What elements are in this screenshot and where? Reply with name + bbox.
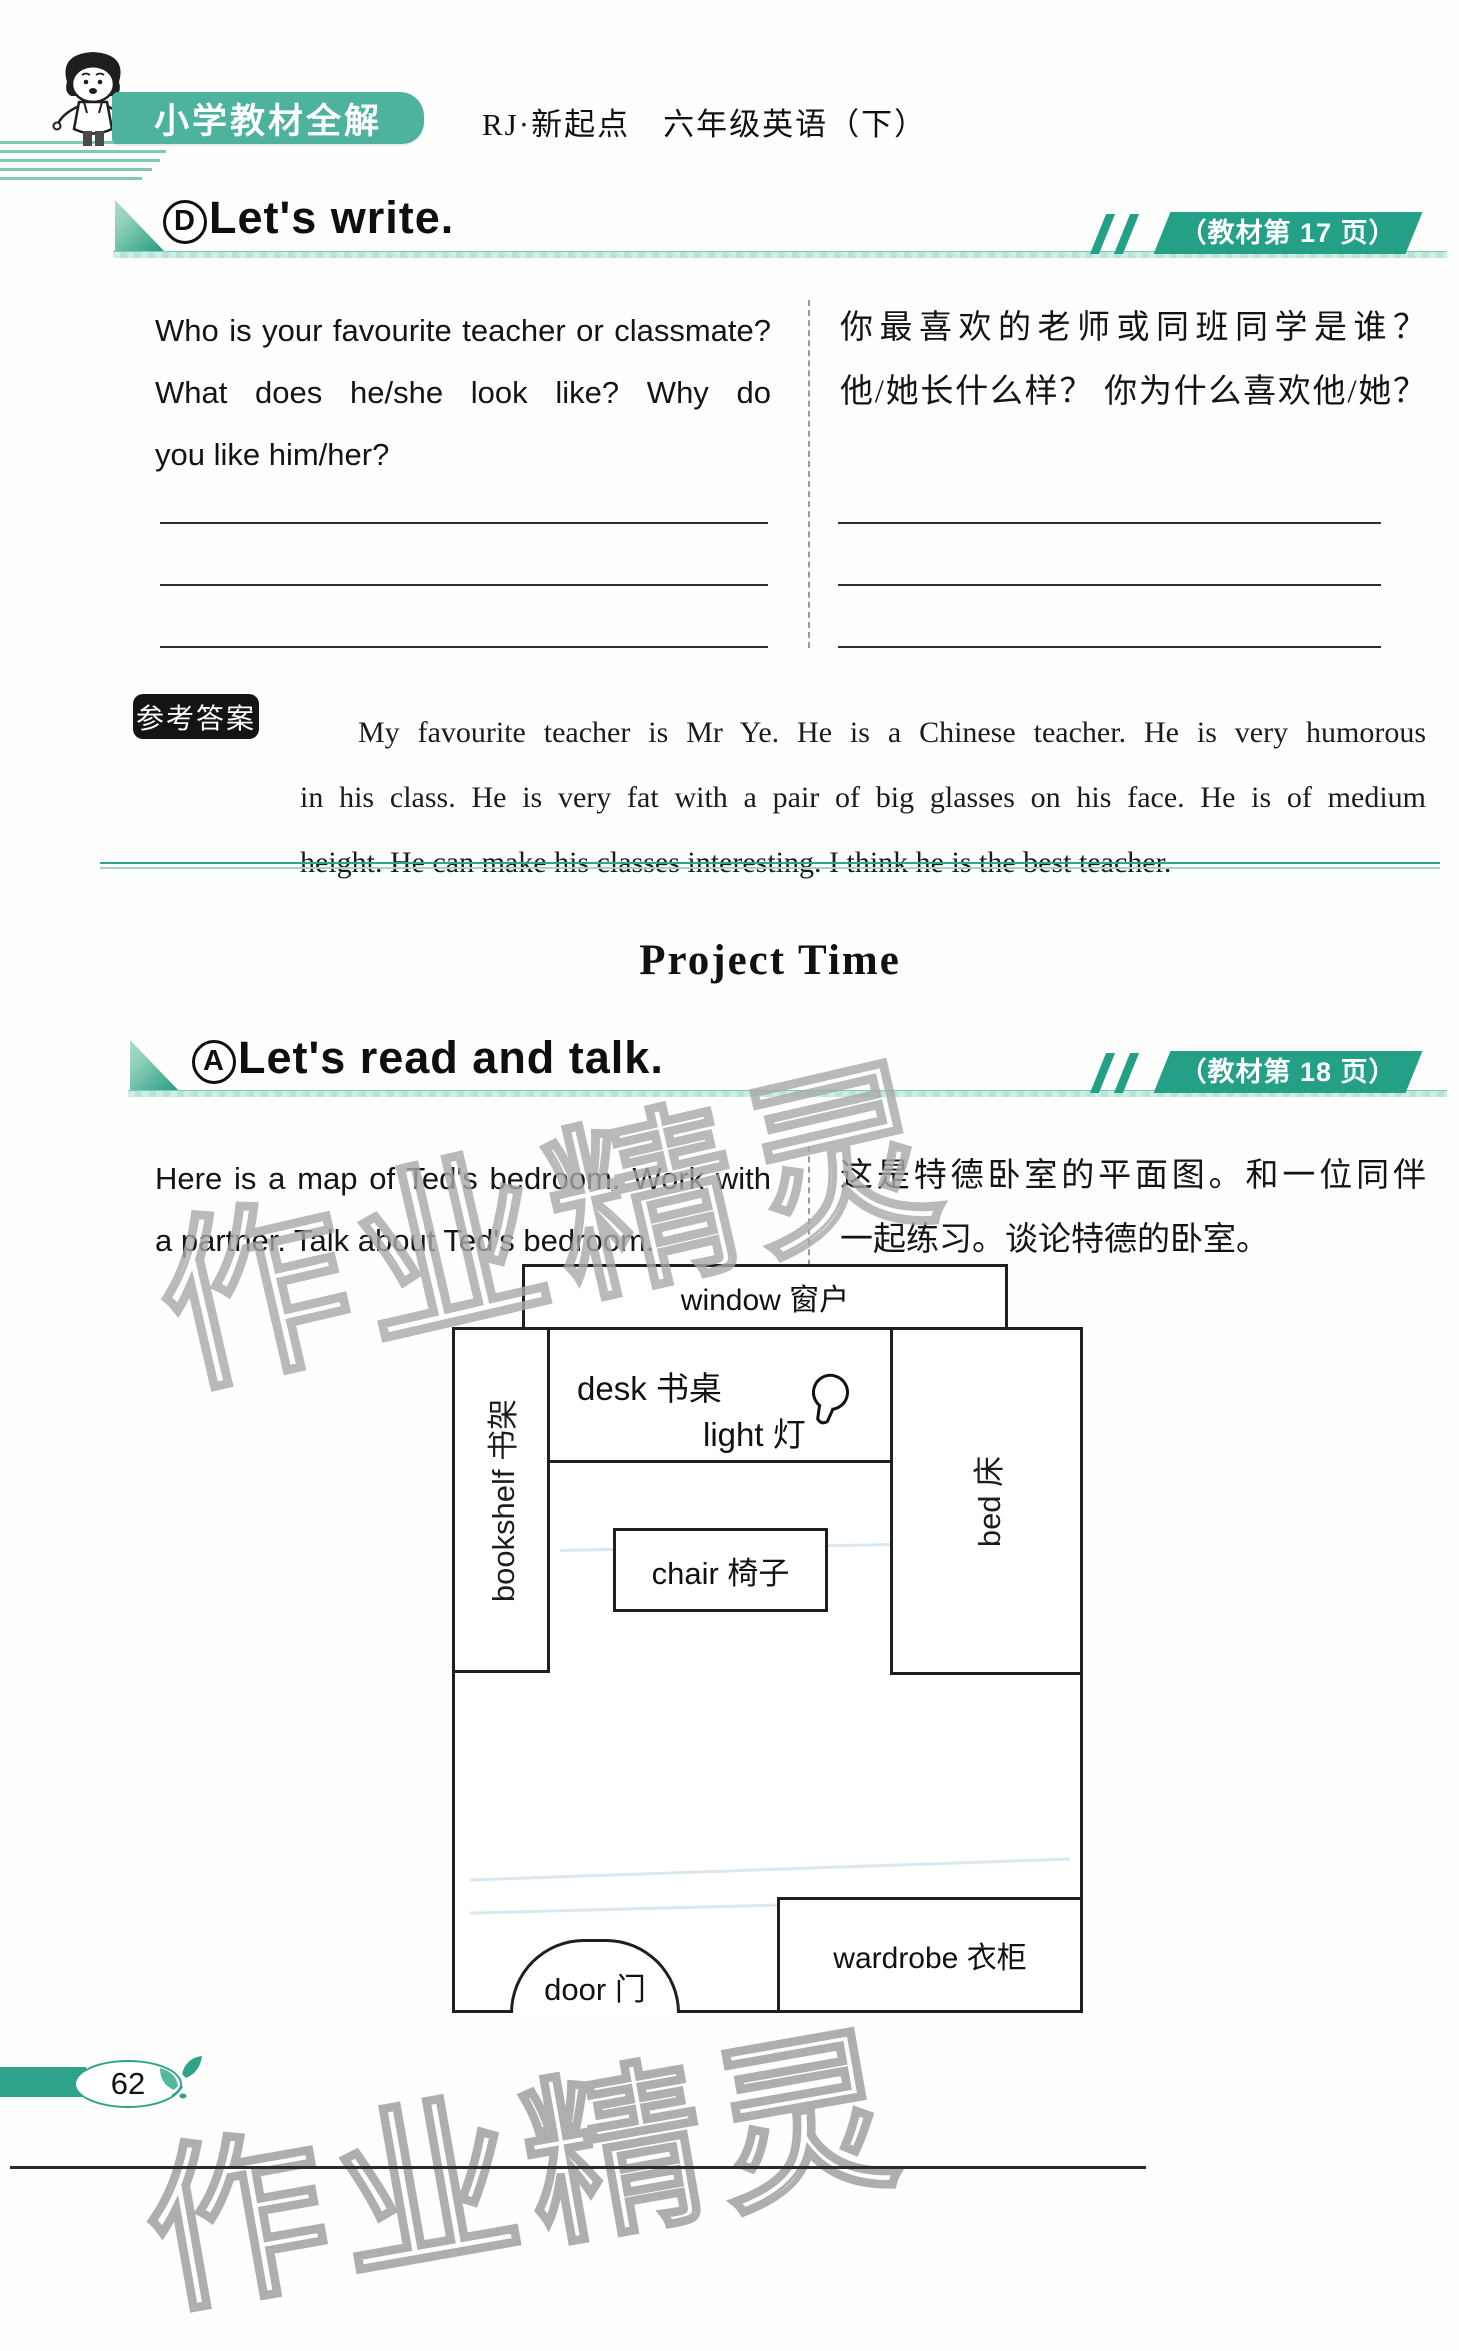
header-decor-line [0, 177, 142, 180]
section-d-page-ref-badge: （教材第 17 页） [1154, 212, 1423, 254]
watermark-text: 作业精灵 [123, 1960, 925, 2350]
answer-line: in his class. He is very fat with a pair… [300, 765, 1426, 830]
page-number: 62 [111, 2066, 145, 2102]
question-zh-line: 你最喜欢的老师或同班同学是谁？ [840, 296, 1426, 360]
pencil-scribble [470, 1900, 900, 1914]
question-en-line: you like him/her? [155, 424, 771, 486]
section-d-triangle [115, 200, 165, 252]
map-chair-label: chair 椅子 [652, 1548, 790, 1593]
textbook-page: { "page": { "brand": "小学教材全解", "edition"… [0, 0, 1459, 2175]
project-time-heading: Project Time [100, 936, 1440, 985]
question-english: Who is your favourite teacher or classma… [155, 300, 771, 486]
writing-line [838, 522, 1381, 524]
section-d-badge-stripe [1090, 214, 1115, 254]
section-a-page-ref-badge: （教材第 18 页） [1154, 1051, 1423, 1093]
writing-line [160, 646, 768, 648]
page-header: 小学教材全解 RJ·新起点 六年级英语（下） [0, 0, 1459, 200]
page-bottom-rule [10, 2166, 1146, 2169]
map-room-outline [452, 1327, 1083, 2013]
column-divider [808, 300, 810, 648]
light-bulb-icon [797, 1365, 858, 1437]
map-light-label: light 灯 [703, 1408, 806, 1456]
leaf-icon [150, 2052, 204, 2104]
edition-title: RJ·新起点 六年级英语（下） [482, 99, 927, 144]
writing-line [160, 522, 768, 524]
section-d-title-text: Let's write. [209, 192, 454, 243]
map-bookshelf-box: bookshelf 书架 [452, 1327, 550, 1673]
section-a-letter-icon: A [192, 1040, 236, 1084]
section-a-triangle [130, 1040, 180, 1092]
map-chair-box: chair 椅子 [613, 1528, 828, 1612]
map-desk-label: desk 书桌 [577, 1362, 722, 1410]
section-a-badge-stripe [1114, 1053, 1139, 1093]
question-chinese: 你最喜欢的老师或同班同学是谁？ 他/她长什么样？ 你为什么喜欢他/她？ [840, 296, 1426, 424]
section-separator [100, 862, 1440, 869]
answer-line: My favourite teacher is Mr Ye. He is a C… [300, 700, 1426, 765]
map-bookshelf-label: bookshelf 书架 [479, 1398, 524, 1601]
question-en-line: What does he/she look like? Why do [155, 362, 771, 424]
map-bed-box: bed 床 [890, 1327, 1083, 1675]
reference-answer-badge: 参考答案 [133, 694, 259, 739]
header-decor-line [0, 168, 152, 171]
brand-title: 小学教材全解 [154, 93, 382, 144]
section-d-title: DLet's write. [163, 192, 454, 244]
writing-line [838, 584, 1381, 586]
section-d-badge-stripe [1114, 214, 1139, 254]
section-a-badge-stripe [1090, 1053, 1115, 1093]
reference-answer-label: 参考答案 [136, 697, 256, 737]
section-d-letter-icon: D [163, 200, 207, 244]
header-decor-line [0, 159, 160, 162]
section-a-page-ref: （教材第 18 页） [1162, 1051, 1414, 1093]
writing-line [160, 584, 768, 586]
map-bed-label: bed 床 [964, 1455, 1009, 1546]
section-d-page-ref: （教材第 17 页） [1162, 212, 1414, 254]
map-desk-area: desk 书桌 light 灯 [547, 1330, 890, 1463]
brand-banner: 小学教材全解 [112, 92, 424, 144]
question-zh-line: 他/她长什么样？ 你为什么喜欢他/她？ [840, 360, 1426, 424]
question-en-line: Who is your favourite teacher or classma… [155, 300, 771, 362]
writing-line [838, 646, 1381, 648]
pencil-scribble [560, 1541, 1010, 1552]
pencil-scribble [470, 1858, 1070, 1882]
